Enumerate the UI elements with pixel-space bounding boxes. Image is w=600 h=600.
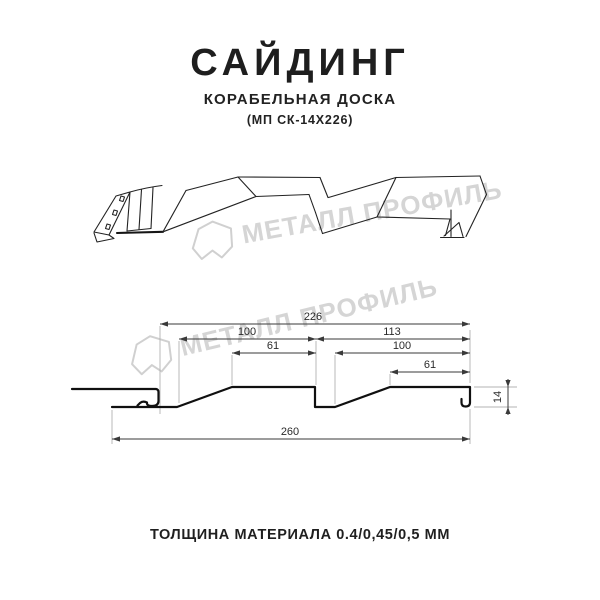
dimension-14: 14 (492, 379, 511, 415)
dim-label-100-left: 100 (238, 326, 256, 338)
dim-label-260: 260 (281, 426, 299, 438)
dimension-226: 226 (160, 311, 470, 327)
dimension-100-right: 100 (335, 340, 470, 356)
dim-label-61-right: 61 (424, 359, 436, 371)
page-title: САЙДИНГ (0, 44, 600, 82)
dim-label-113: 113 (383, 326, 401, 338)
extension-lines (112, 326, 517, 444)
dimension-260: 260 (112, 426, 470, 442)
dimension-100-left: 100 (179, 326, 316, 342)
header: САЙДИНГ КОРАБЕЛЬНАЯ ДОСКА (МП СК-14Х226) (0, 44, 600, 127)
product-sheet: САЙДИНГ КОРАБЕЛЬНАЯ ДОСКА (МП СК-14Х226)… (0, 0, 600, 600)
siding-3d-view (88, 152, 492, 272)
dim-label-226: 226 (304, 311, 322, 323)
thickness-note: ТОЛЩИНА МАТЕРИАЛА 0.4/0,45/0,5 ММ (0, 527, 600, 543)
product-subtitle: КОРАБЕЛЬНАЯ ДОСКА (0, 91, 600, 108)
dim-label-14: 14 (492, 391, 504, 403)
dim-label-100-right: 100 (393, 340, 411, 352)
dimension-61-right: 61 (390, 359, 470, 375)
profile-outline (72, 387, 470, 407)
cross-section-view: 226 100 113 61 100 (55, 295, 530, 460)
dim-label-61-left: 61 (267, 340, 279, 352)
dimension-61-left: 61 (232, 340, 316, 356)
product-model: (МП СК-14Х226) (0, 113, 600, 127)
